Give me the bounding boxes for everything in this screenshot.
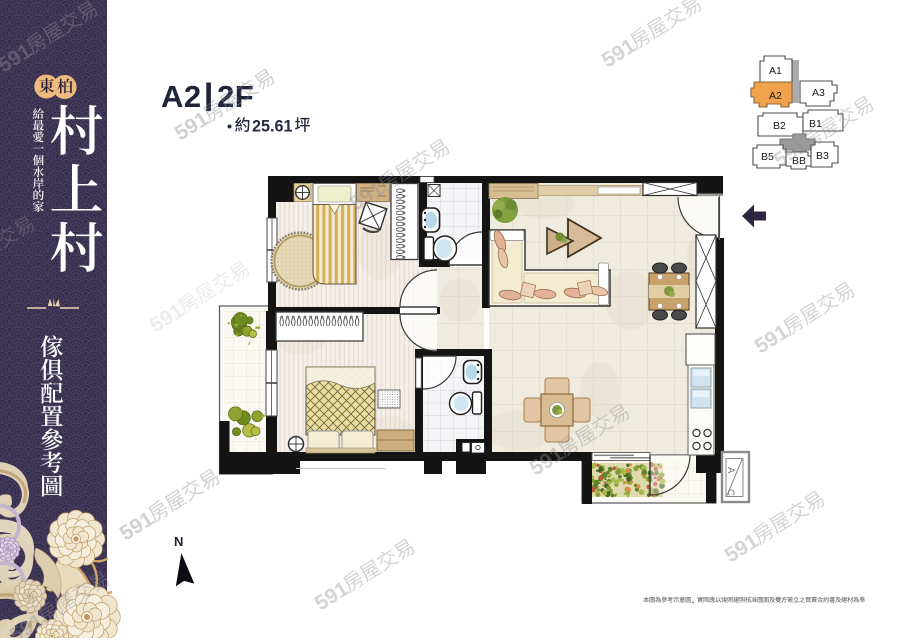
svg-text:A2: A2 <box>161 79 202 114</box>
svg-text:A1: A1 <box>769 65 782 77</box>
svg-text:C: C <box>725 489 736 496</box>
svg-text:B3: B3 <box>816 150 829 162</box>
svg-text:N: N <box>174 534 183 549</box>
svg-text:A2: A2 <box>769 90 782 102</box>
svg-text:A: A <box>725 467 736 474</box>
svg-text:25.61: 25.61 <box>252 118 293 136</box>
svg-text:A3: A3 <box>812 87 825 99</box>
svg-text:B2: B2 <box>773 120 786 132</box>
